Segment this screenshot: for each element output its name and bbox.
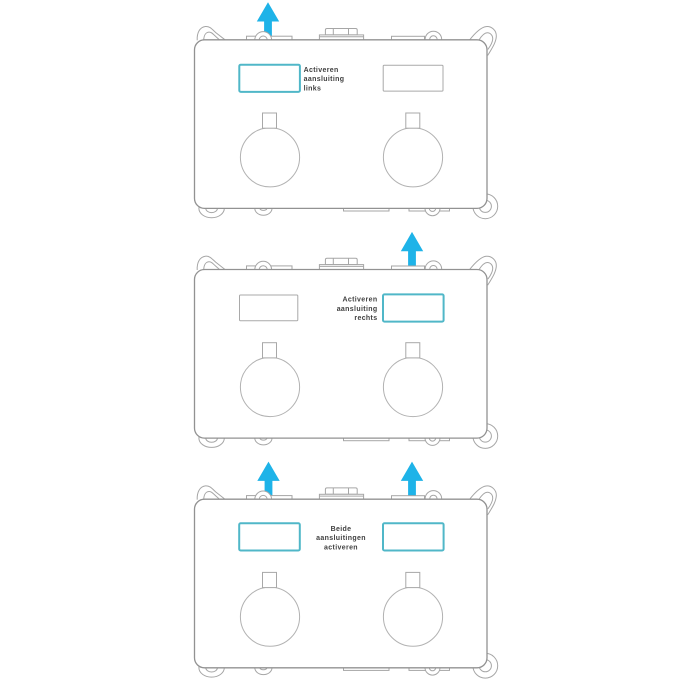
svg-text:links: links (304, 86, 322, 93)
svg-text:rechts: rechts (354, 315, 377, 322)
svg-text:aansluiting: aansluiting (304, 76, 345, 83)
svg-text:aansluiting: aansluiting (337, 306, 378, 313)
svg-text:Activeren: Activeren (304, 67, 339, 74)
svg-text:activeren: activeren (324, 544, 358, 551)
svg-text:aansluitingen: aansluitingen (316, 535, 366, 542)
svg-text:Activeren: Activeren (342, 297, 377, 304)
svg-text:Beide: Beide (331, 526, 352, 533)
